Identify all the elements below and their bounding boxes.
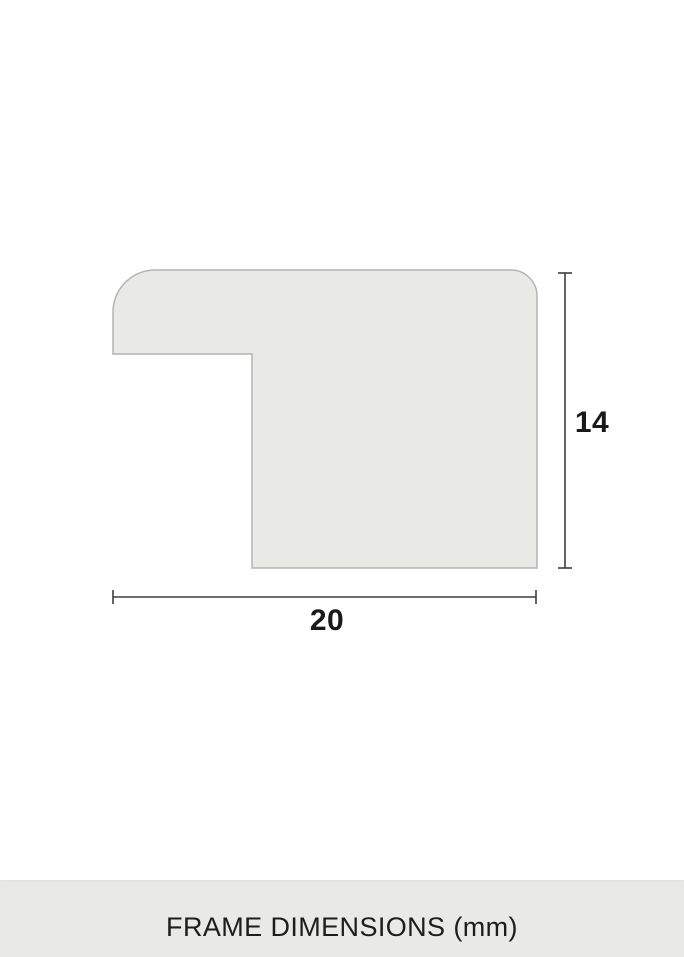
height-dimension-label: 14 [575, 406, 609, 439]
frame-profile-shape [113, 270, 537, 568]
height-dimension-line [558, 273, 572, 568]
footer-title: FRAME DIMENSIONS (mm) [0, 912, 684, 943]
frame-profile-shape-group [113, 270, 537, 568]
width-dimension-label: 20 [310, 604, 344, 637]
frame-profile-svg: 14 20 [0, 0, 684, 880]
frame-profile-diagram: 14 20 [0, 0, 684, 880]
width-dimension-line [113, 590, 536, 604]
frame-dimensions-page: 14 20 FRAME DIMENSIONS (mm) [0, 0, 684, 957]
